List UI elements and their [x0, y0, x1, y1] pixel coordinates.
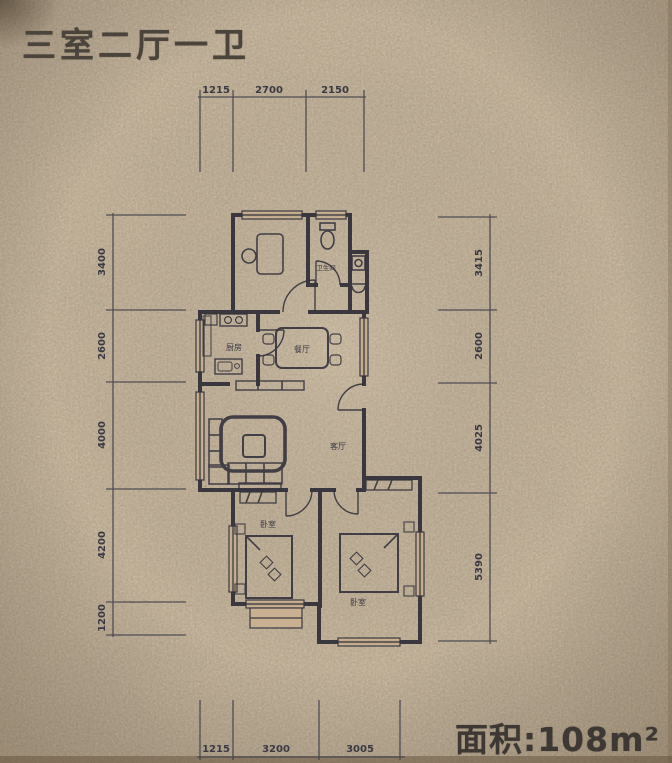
bed-left-deco-2 — [268, 568, 281, 581]
washing-machine — [352, 256, 365, 270]
kitchen-sink — [215, 359, 242, 374]
window-bedroom-left-side — [229, 526, 237, 592]
dining-chair-2 — [263, 355, 274, 365]
window-dining-right — [360, 318, 368, 376]
label-bedroom-left: 卧室 — [260, 519, 276, 529]
nightstand-right-2 — [404, 586, 414, 596]
dining-chair-4 — [330, 355, 341, 365]
bed-right-deco-2 — [358, 564, 371, 577]
coffee-table — [243, 435, 265, 457]
stove-burner-1 — [225, 317, 232, 324]
study-desk — [257, 234, 283, 274]
window-study-top — [242, 211, 302, 219]
bed-right-deco-1 — [350, 552, 363, 565]
label-kitchen: 厨房 — [226, 342, 242, 352]
window-bedroom-right-side — [416, 532, 424, 596]
dining-chair-3 — [330, 334, 341, 344]
dim-left-1: 3400 — [97, 248, 108, 276]
dim-bottom-2: 3200 — [262, 744, 290, 755]
dim-left-5: 1200 — [97, 604, 108, 632]
dim-left-3: 4000 — [97, 421, 108, 449]
door-bedroom-right — [334, 490, 358, 514]
dim-right-2: 2600 — [474, 332, 485, 360]
bay-window-bedroom-left — [250, 608, 302, 628]
stove-burner-2 — [236, 317, 243, 324]
dim-top-2: 2700 — [255, 85, 283, 96]
kitchen-sink-basin — [218, 362, 232, 371]
dim-right-4: 5390 — [474, 553, 485, 581]
label-dining: 餐厅 — [294, 345, 310, 354]
floorplan-drawing: 1215 2700 2150 1215 3200 3005 3400 2600 … — [0, 0, 672, 763]
wash-basin — [352, 284, 365, 293]
nightstand-right-1 — [404, 522, 414, 532]
dimension-lines — [106, 90, 497, 760]
dim-right-3: 4025 — [474, 424, 485, 452]
floorplan-page: 1215 2700 2150 1215 3200 3005 3400 2600 … — [0, 0, 672, 763]
dim-bottom-3: 3005 — [346, 744, 374, 755]
window-living-left — [196, 392, 204, 480]
washing-machine-drum — [355, 260, 362, 267]
dim-top-3: 2150 — [321, 85, 349, 96]
area-text: 面积:108m² — [455, 713, 660, 761]
sideboard-cabinet — [236, 381, 304, 390]
dim-line-right — [438, 214, 497, 644]
dim-left-4: 4200 — [97, 531, 108, 559]
bed-right-fold — [384, 534, 398, 548]
label-bedroom-right: 卧室 — [350, 597, 366, 607]
label-living: 客厅 — [330, 441, 346, 451]
window-bedroom-right-bottom — [338, 638, 400, 646]
dim-bottom-1: 1215 — [202, 744, 230, 755]
wardrobe-right — [366, 480, 412, 490]
bed-left-fold — [246, 536, 260, 550]
label-bathroom: 卫生间 — [316, 263, 336, 272]
study-chair — [242, 249, 256, 263]
dim-right-1: 3415 — [474, 249, 485, 277]
door-entry — [338, 384, 364, 410]
outer-wall-upper — [233, 215, 367, 384]
toilet-tank — [320, 223, 335, 230]
door-bedroom-left — [286, 490, 312, 516]
window-bath-top — [316, 211, 346, 219]
toilet-bowl — [321, 231, 334, 249]
window-bedroom-left-bottom — [246, 600, 304, 608]
dimension-labels: 1215 2700 2150 1215 3200 3005 3400 2600 … — [97, 85, 485, 755]
page-title: 三室二厅一卫 — [22, 18, 250, 67]
dim-left-2: 2600 — [97, 332, 108, 360]
dim-line-top — [198, 90, 366, 172]
dim-line-left — [106, 213, 186, 637]
dim-top-1: 1215 — [202, 85, 230, 96]
dining-chair-1 — [263, 334, 274, 344]
bed-left-deco-1 — [260, 556, 273, 569]
kitchen-sink-tap — [235, 364, 240, 369]
wardrobe-left — [240, 492, 276, 503]
